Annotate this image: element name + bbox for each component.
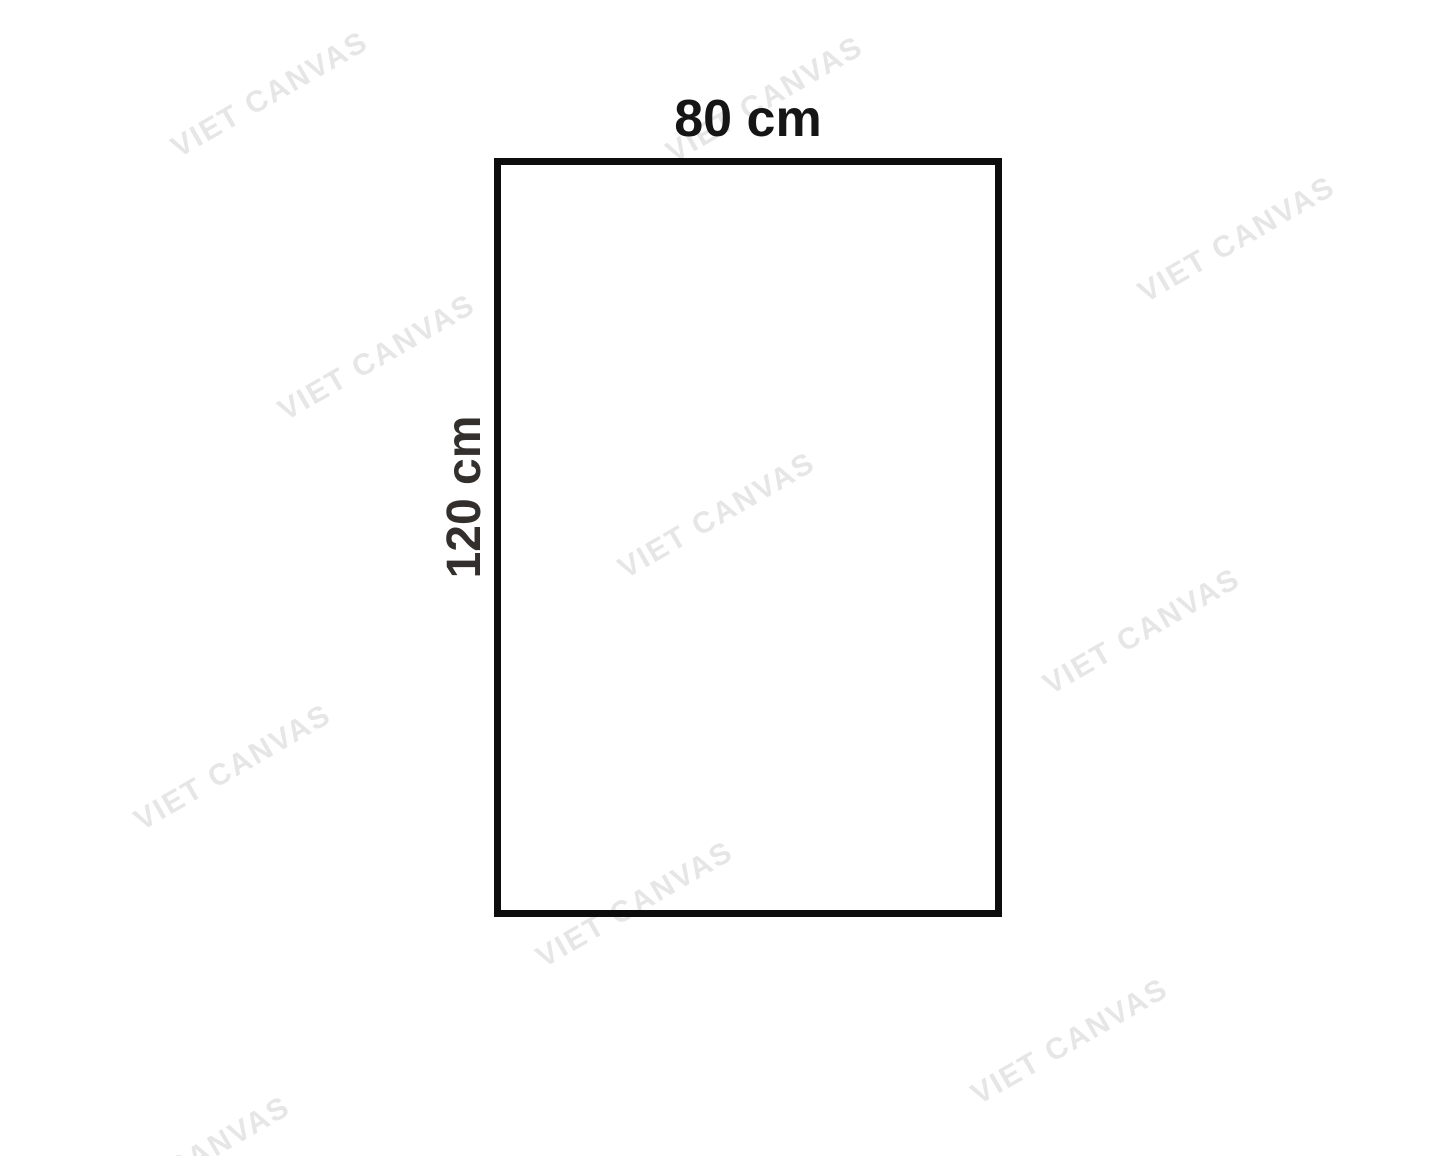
width-dimension-label: 80 cm (494, 90, 1002, 148)
height-dimension-label: 120 cm (440, 397, 490, 597)
canvas-outline-rectangle (494, 158, 1002, 917)
page: VIET CANVAS VIET CANVAS VIET CANVAS VIET… (0, 0, 1445, 1156)
dimension-diagram: 80 cm 120 cm (0, 0, 1445, 1156)
